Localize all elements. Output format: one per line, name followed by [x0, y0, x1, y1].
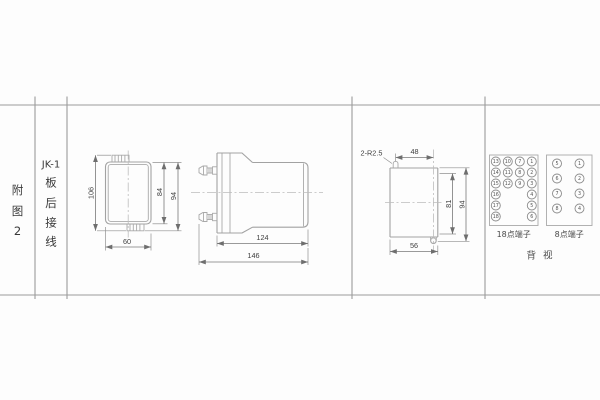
- terminal-number: 6: [530, 214, 533, 220]
- terminal-number: 2: [578, 176, 581, 182]
- title-char-4: 线: [45, 235, 57, 249]
- terminal-number: 7: [555, 191, 558, 197]
- model-label: JK-1: [41, 160, 60, 171]
- side-view: 124 146: [191, 153, 323, 265]
- mounting-flange: [217, 153, 253, 233]
- terminal-number: 8: [555, 206, 558, 212]
- top-terminal-tab: [112, 155, 129, 162]
- figure-label-char-1: 附: [12, 183, 24, 197]
- terminal-8-grid: 51627384: [553, 159, 585, 213]
- rear-view: 131071141182151293164175186 51627384 18点…: [490, 155, 593, 262]
- dim-106-label: 106: [87, 187, 96, 199]
- terminal-number: 10: [505, 159, 511, 165]
- title-char-3: 接: [45, 216, 57, 230]
- stud-terminal-lower: [199, 213, 217, 222]
- terminal-18-grid: 131071141182151293164175186: [491, 157, 536, 221]
- terminal-number: 7: [518, 159, 521, 165]
- terminal-number: 1: [530, 159, 533, 165]
- terminal-number: 1: [578, 161, 581, 167]
- terminal-8-label: 8点端子: [555, 229, 584, 239]
- terminal-number: 9: [518, 181, 521, 187]
- figure-label-char-3: 2: [14, 224, 21, 238]
- rear-view-caption: 背 视: [526, 250, 554, 262]
- terminal-number: 5: [555, 161, 558, 167]
- terminal-number: 18: [493, 214, 499, 220]
- terminal-number: 16: [493, 192, 499, 198]
- relay-body: [253, 163, 309, 228]
- terminal-number: 8: [518, 170, 521, 176]
- terminal-number: 5: [530, 203, 533, 209]
- dim-48-label: 48: [410, 147, 418, 156]
- radius-leader-line: [384, 158, 393, 164]
- dim-56-label: 56: [410, 241, 418, 250]
- radius-note-label: 2-R2.5: [361, 149, 383, 158]
- dim-60-label: 60: [123, 237, 131, 246]
- dim-94-cutout-label: 94: [457, 200, 466, 208]
- terminal-number: 14: [493, 170, 499, 176]
- dim-81-label: 81: [444, 200, 453, 208]
- stud-terminal-upper: [199, 166, 217, 175]
- terminal-number: 3: [530, 181, 533, 187]
- panel-cutout-view: 2-R2.5 48 81 94 56: [361, 147, 470, 255]
- figure-label-char-2: 图: [12, 204, 24, 218]
- terminal-number: 15: [493, 181, 499, 187]
- terminal-number: 13: [493, 159, 499, 165]
- drawing-title: JK-1 板 后 接 线: [41, 160, 60, 249]
- terminal-number: 3: [578, 191, 581, 197]
- technical-drawing-canvas: 附 图 2 JK-1 板 后 接 线 106 84 94: [0, 0, 600, 400]
- front-view: 106 84 94 60: [87, 151, 182, 251]
- terminal-number: 6: [555, 176, 558, 182]
- terminal-number: 2: [530, 170, 533, 176]
- dim-124-label: 124: [256, 233, 268, 242]
- figure-label: 附 图 2: [12, 183, 24, 238]
- terminal-number: 12: [505, 181, 511, 187]
- terminal-18-label: 18点端子: [497, 229, 531, 239]
- terminal-number: 4: [530, 192, 533, 198]
- top-mounting-notch: [393, 161, 398, 168]
- title-char-2: 后: [45, 196, 57, 210]
- dim-84-label: 84: [155, 188, 164, 196]
- terminal-number: 17: [493, 203, 499, 209]
- bottom-terminal-tab: [127, 224, 144, 231]
- dim-94-label: 94: [169, 192, 178, 200]
- title-char-1: 板: [45, 176, 57, 190]
- dim-146-label: 146: [247, 251, 259, 260]
- terminal-number: 4: [578, 206, 581, 212]
- terminal-number: 11: [505, 170, 511, 176]
- drawing-sheet: 附 图 2 JK-1 板 后 接 线 106 84 94: [0, 0, 600, 400]
